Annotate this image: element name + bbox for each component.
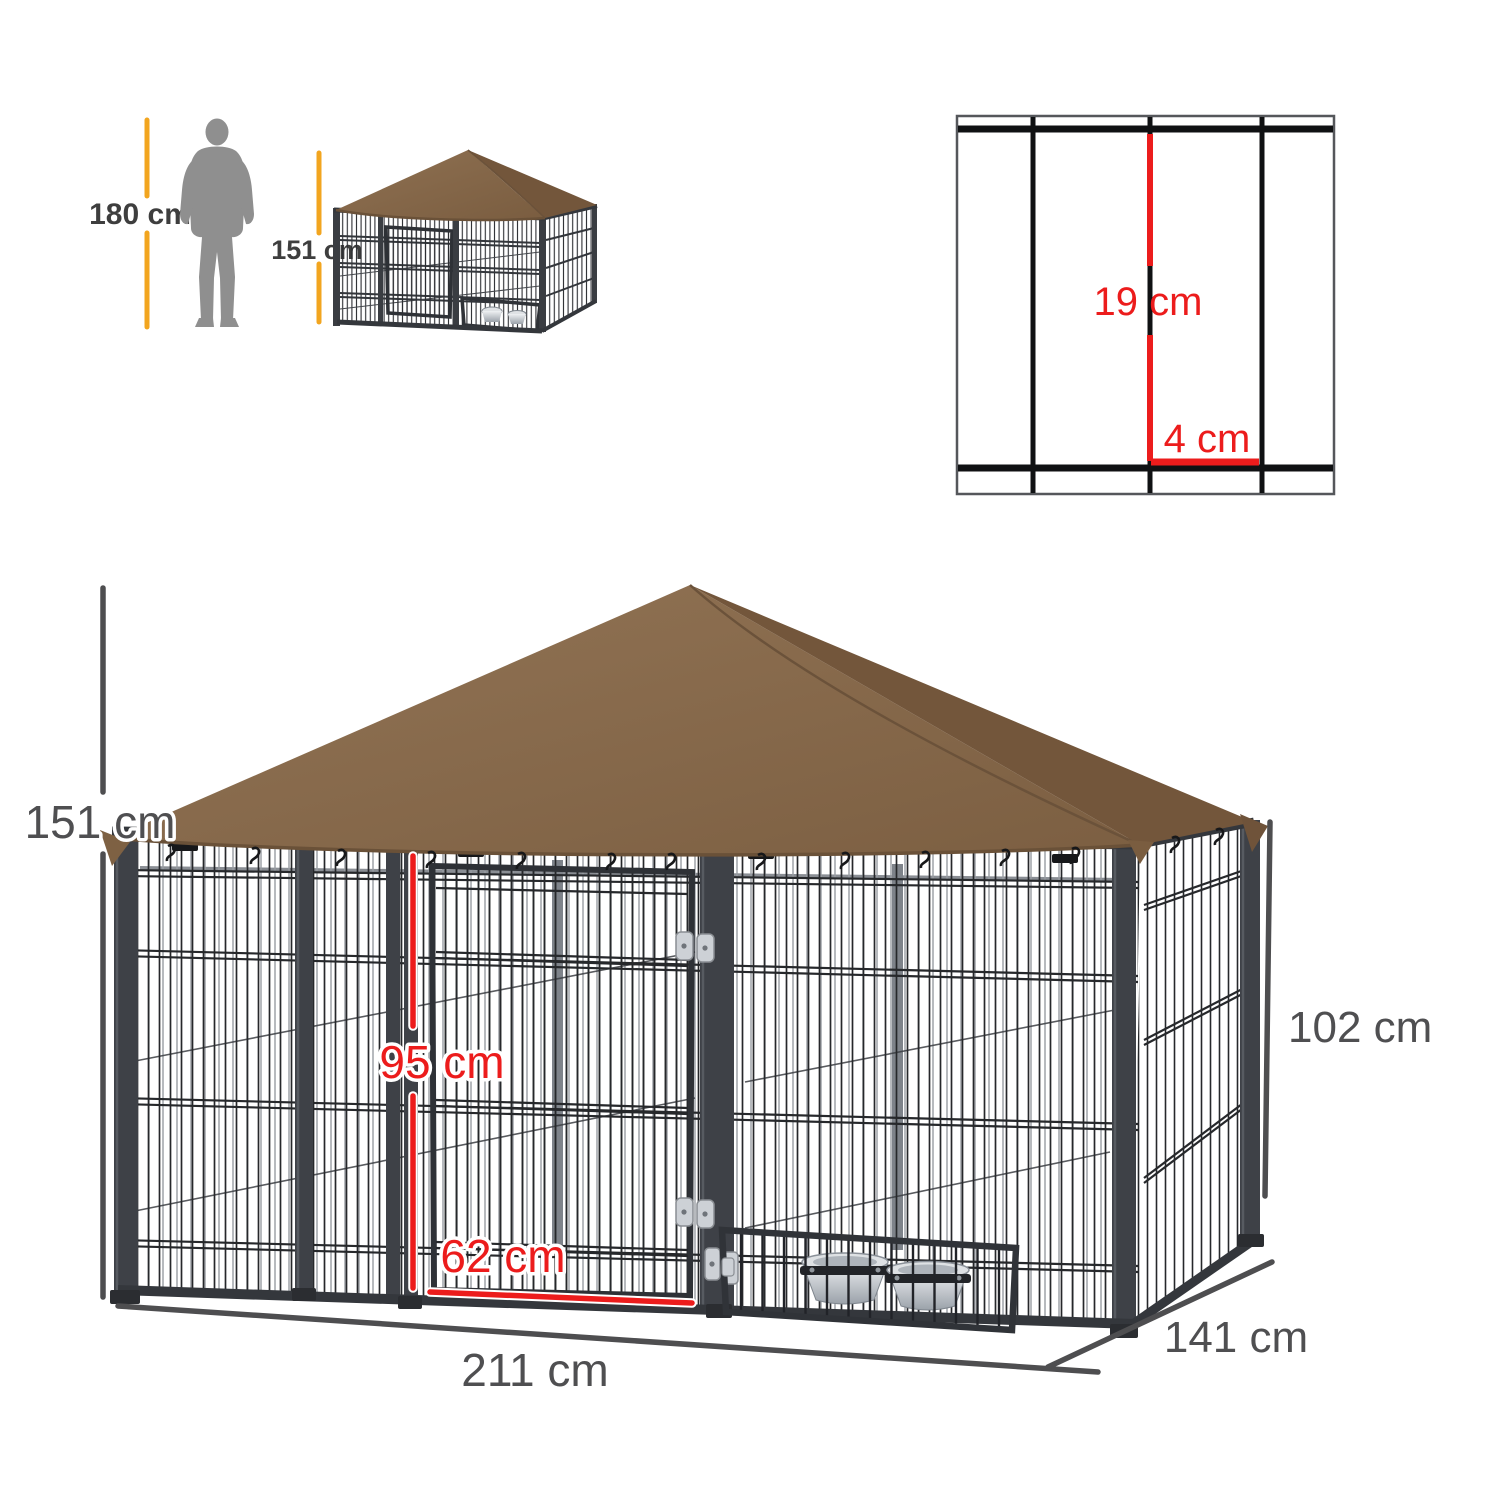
panel-height-label: 102 cm <box>1288 1003 1432 1052</box>
overall-depth-label: 141 cm <box>1164 1313 1308 1362</box>
person-height-label: 180 cm <box>89 198 191 231</box>
product-dimension-diagram: 180 cm 151 cm <box>0 0 1500 1500</box>
overall-height-label: 151 cm <box>25 796 176 848</box>
mesh-vertical-spacing-label: 19 cm <box>1094 280 1203 324</box>
main-kennel-illustration: 95 cm 62 cm <box>100 585 1268 1338</box>
mini-door <box>386 227 452 317</box>
small-kennel-preview <box>333 150 597 332</box>
mesh-horizontal-spacing-label: 4 cm <box>1164 417 1251 461</box>
diagram-scene: 180 cm 151 cm <box>0 0 1500 1500</box>
door-height-label: 95 cm <box>379 1036 504 1088</box>
mini-side-mesh <box>543 206 596 330</box>
door-width-label: 62 cm <box>440 1230 565 1282</box>
person-silhouette <box>180 119 254 328</box>
roof-canopy <box>100 585 1268 866</box>
overall-width-label: 211 cm <box>461 1344 608 1396</box>
mesh-spacing-detail: 19 cm 4 cm <box>957 116 1334 494</box>
scale-reference: 180 cm 151 cm <box>89 119 597 333</box>
feeder-with-bowls <box>722 1230 1016 1330</box>
panel-height-dimension-line <box>1265 822 1270 1196</box>
mini-roof <box>336 150 597 220</box>
